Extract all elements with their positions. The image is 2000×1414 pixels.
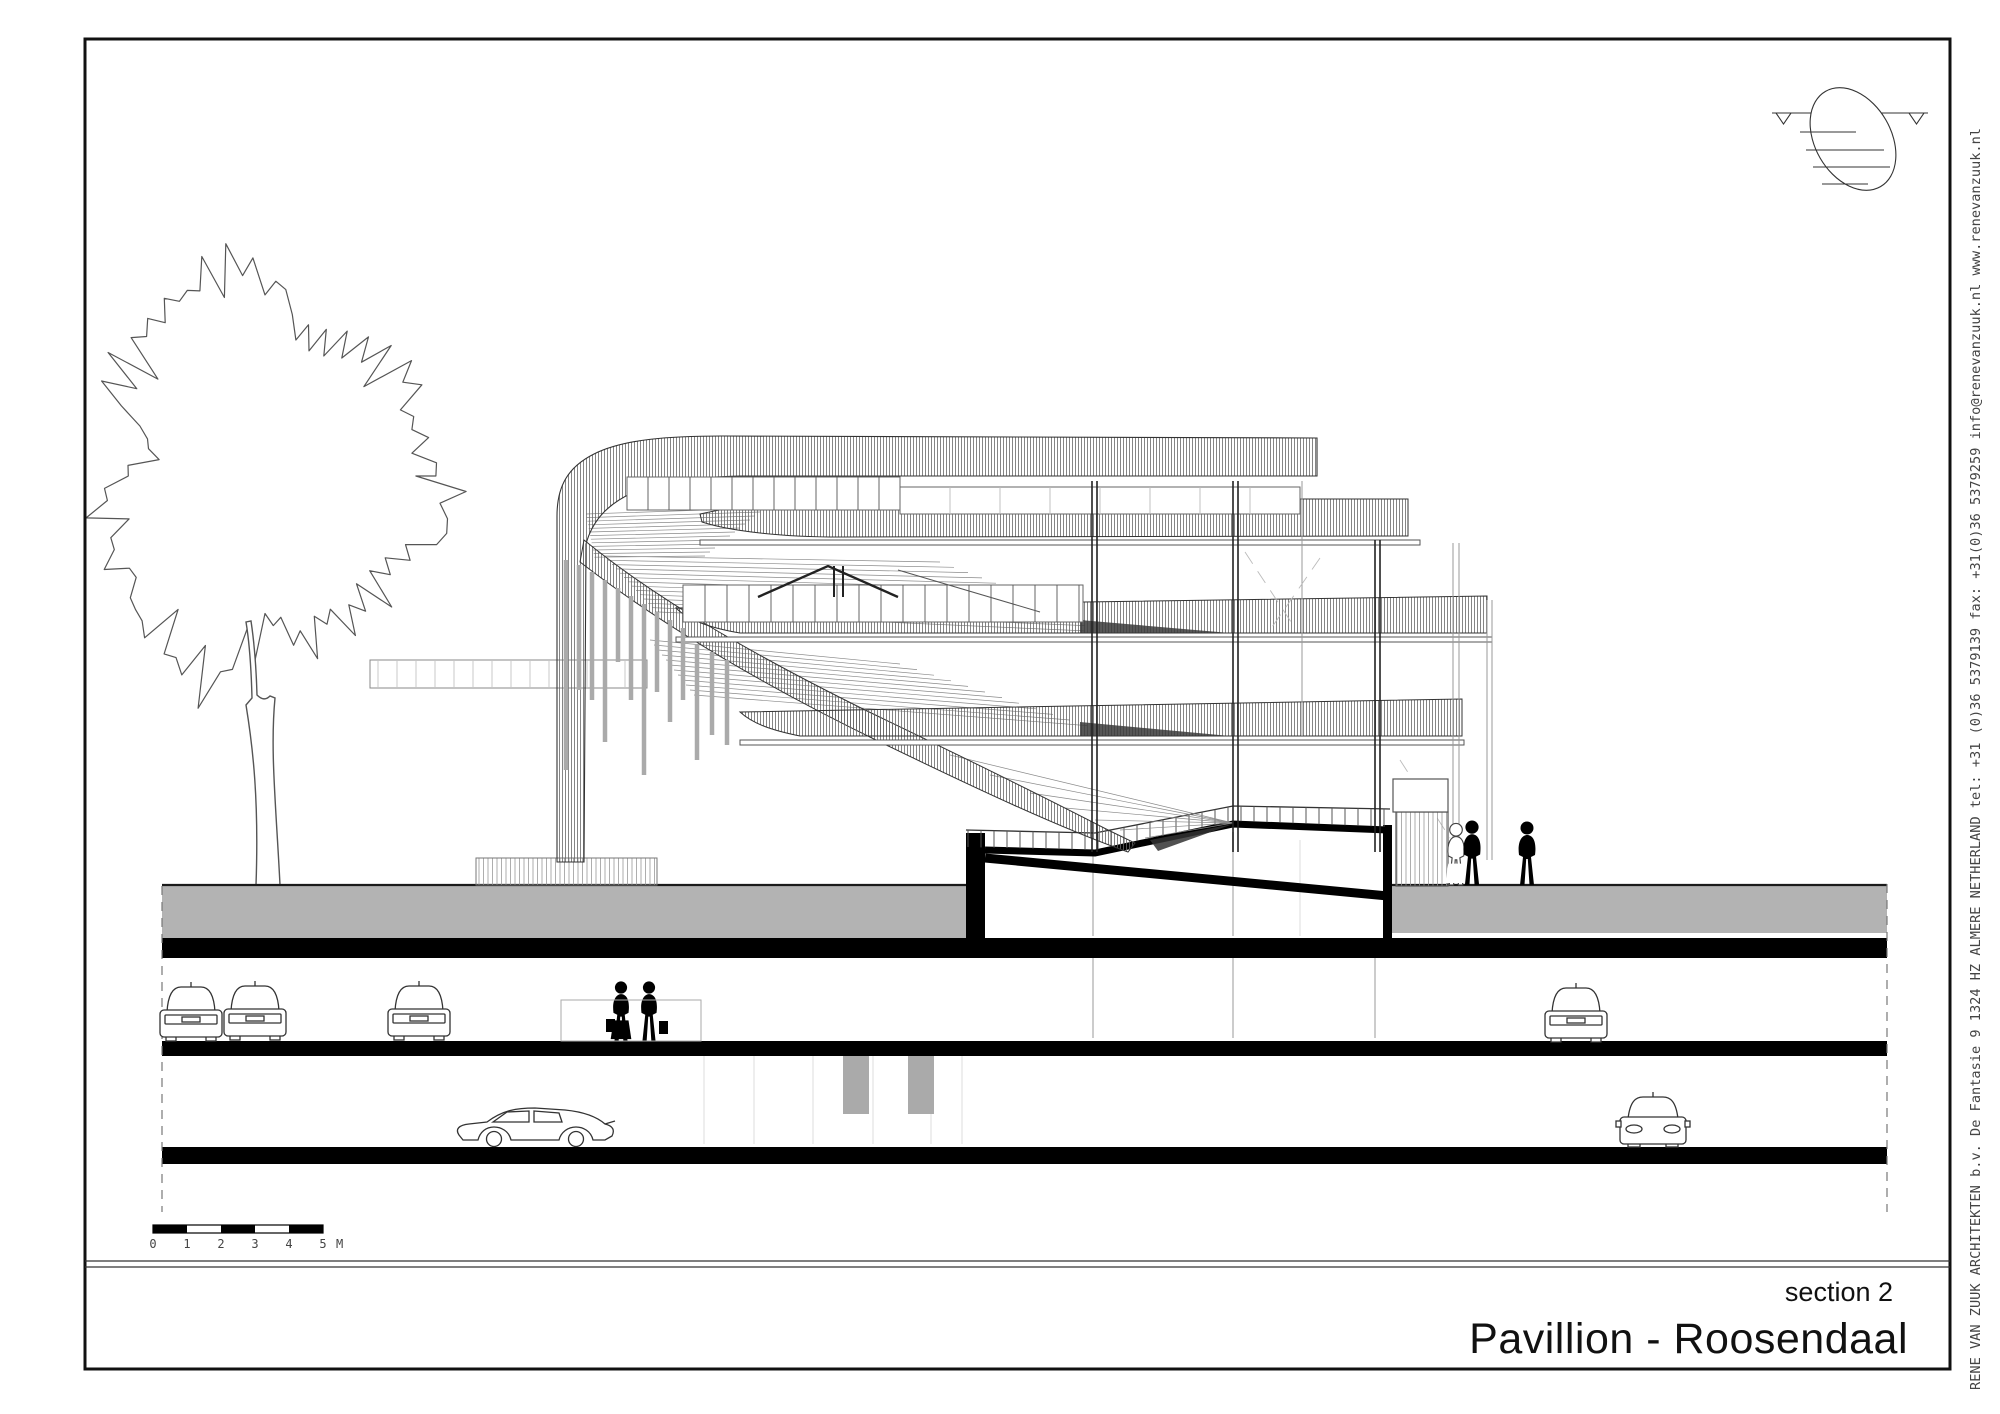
basement-wall-right xyxy=(1383,825,1392,938)
scale-bar: 0 1 2 3 4 5 M xyxy=(149,1225,343,1251)
section-drawing: 0 1 2 3 4 5 M section 2 Pavillion - Roos… xyxy=(0,0,2000,1414)
tree-trunk xyxy=(246,621,280,885)
scale-tick-3: 3 xyxy=(251,1237,258,1251)
basement-wall-left xyxy=(966,833,985,938)
sheet-border xyxy=(85,39,1950,1369)
project-title: Pavillion - Roosendaal xyxy=(1469,1315,1908,1363)
scale-tick-1: 1 xyxy=(183,1237,190,1251)
person-silhouette-icon xyxy=(1519,822,1536,886)
drawing-sheet: 0 1 2 3 4 5 M section 2 Pavillion - Roos… xyxy=(0,0,2000,1414)
tree xyxy=(86,244,466,709)
scale-unit: M xyxy=(336,1237,343,1251)
scale-tick-0: 0 xyxy=(149,1237,156,1251)
car-icon xyxy=(388,981,450,1040)
ground-fill-right xyxy=(1392,885,1887,933)
ground-fill-left xyxy=(162,885,985,938)
scale-tick-2: 2 xyxy=(217,1237,224,1251)
firm-info-vertical-text: RENE VAN ZUUK ARCHITEKTEN b.v. De Fantas… xyxy=(1968,128,1984,1390)
kiosk-top xyxy=(1393,779,1448,812)
road-deck-middle xyxy=(162,1041,1887,1056)
car-icon xyxy=(1616,1092,1690,1147)
car-icon xyxy=(457,1108,615,1147)
drawing-label: section 2 xyxy=(1785,1277,1893,1307)
scale-tick-5: 5 xyxy=(319,1237,326,1251)
scale-tick-4: 4 xyxy=(285,1237,292,1251)
car-icon xyxy=(1545,983,1607,1042)
person-silhouette-icon xyxy=(1463,821,1480,885)
road-deck-upper xyxy=(162,938,1887,958)
person-silhouette-icon xyxy=(611,981,632,1041)
basement-section xyxy=(966,806,1392,938)
architect-egg-logo-icon xyxy=(1772,72,1928,205)
kiosk xyxy=(1396,812,1448,886)
road-deck-lower xyxy=(162,1147,1887,1164)
car-icon xyxy=(224,981,286,1040)
car-icon xyxy=(160,982,222,1041)
person-silhouette-icon xyxy=(641,981,657,1041)
